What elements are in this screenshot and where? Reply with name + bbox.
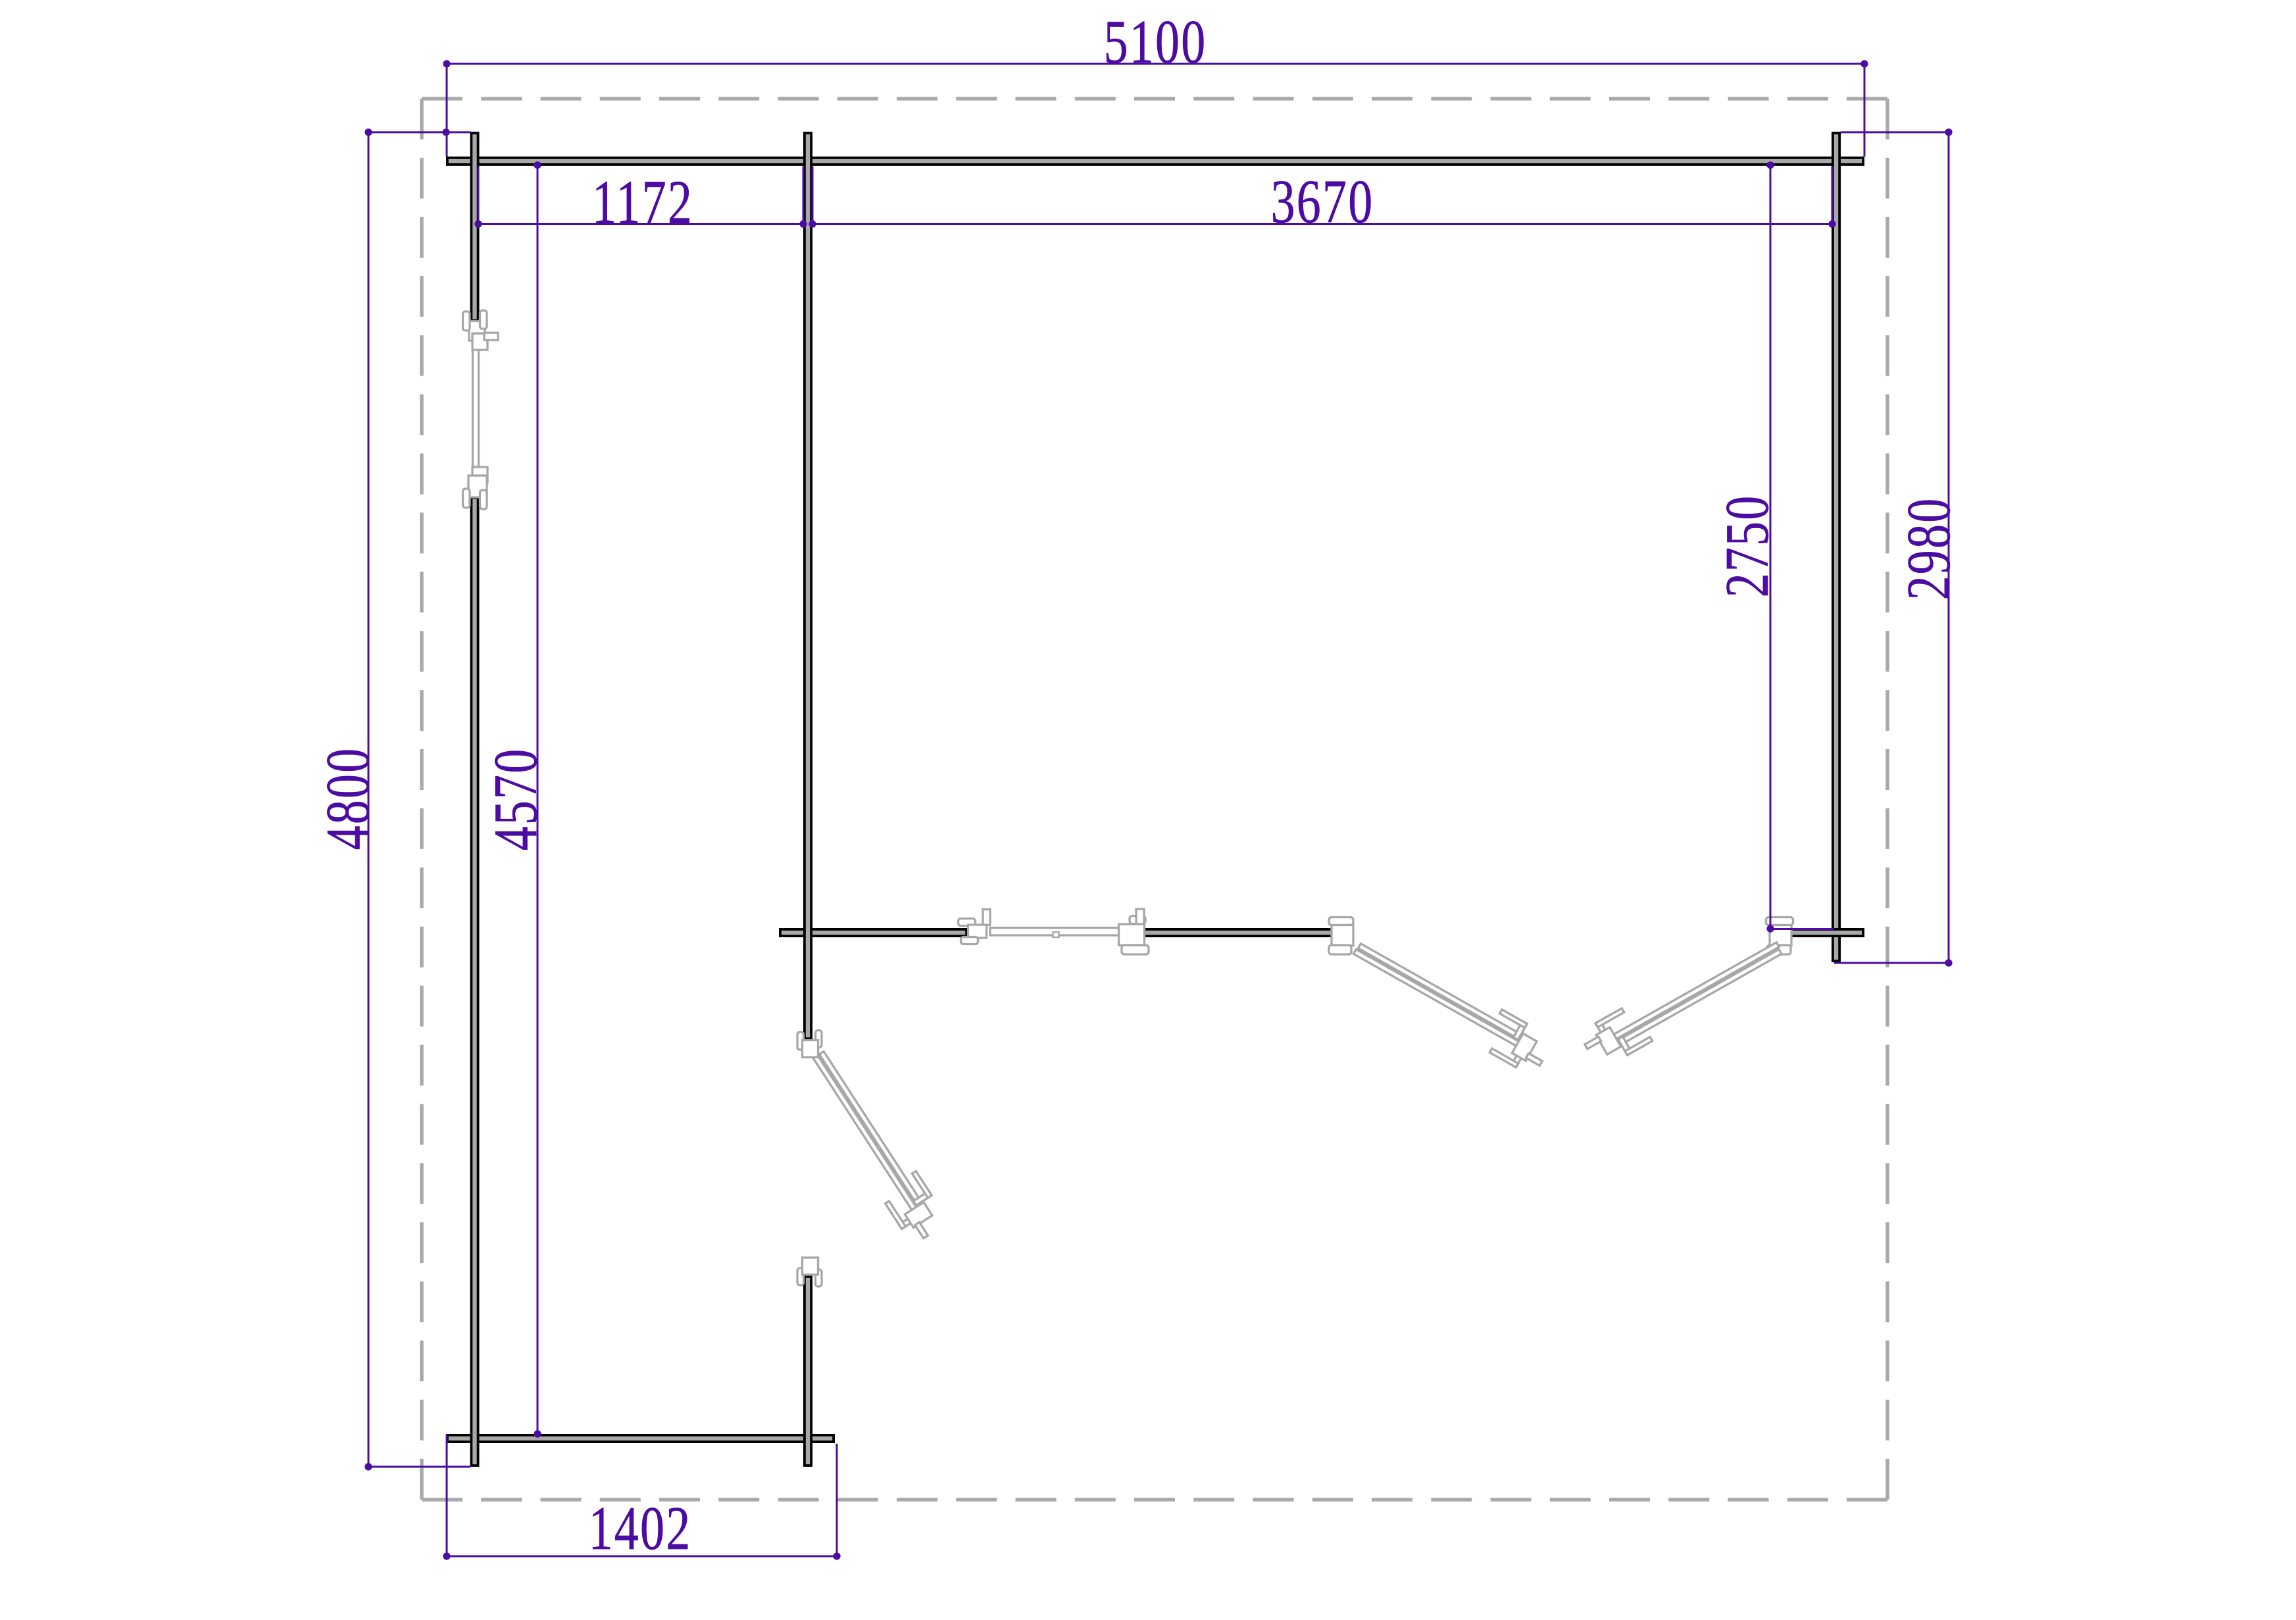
svg-text:2980: 2980 bbox=[1895, 497, 1963, 601]
svg-text:1402: 1402 bbox=[589, 1495, 692, 1563]
svg-text:2750: 2750 bbox=[1714, 495, 1782, 598]
svg-text:5100: 5100 bbox=[1104, 9, 1207, 76]
svg-text:4570: 4570 bbox=[482, 748, 550, 851]
svg-text:1172: 1172 bbox=[592, 169, 693, 237]
svg-text:4800: 4800 bbox=[314, 747, 382, 850]
svg-text:3670: 3670 bbox=[1271, 168, 1374, 236]
